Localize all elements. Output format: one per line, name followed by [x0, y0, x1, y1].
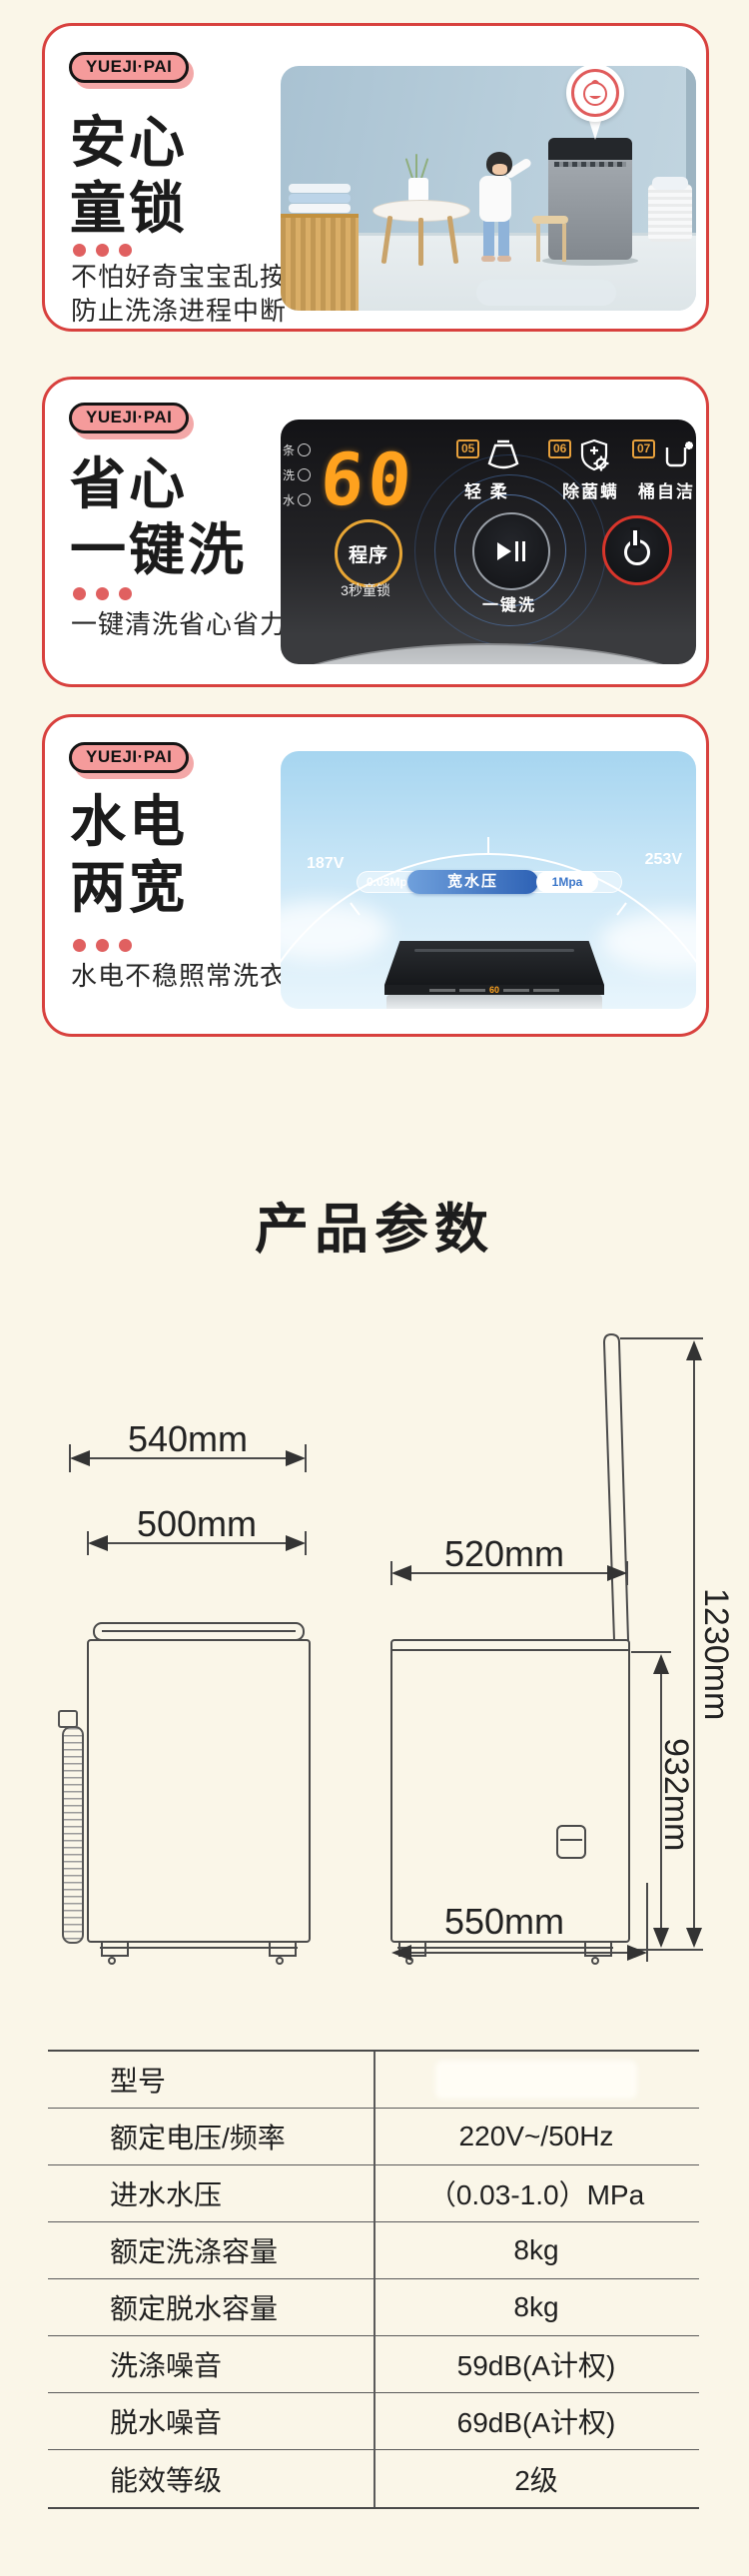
panel-silver-edge	[281, 643, 696, 664]
child-figure	[483, 220, 494, 256]
washing-machine	[548, 138, 632, 260]
dim-side-width: 520mm	[414, 1533, 594, 1575]
power-button	[602, 515, 672, 585]
row-value: 8kg	[374, 2291, 699, 2323]
card1-desc-line1: 不怕好奇宝宝乱按	[71, 260, 287, 294]
feature-card-child-lock: YUEJI·PAI 安心 童锁 不怕好奇宝宝乱按 防止洗涤进程中断	[42, 23, 709, 332]
child-lock-photo	[281, 66, 696, 311]
plant-sprig	[420, 158, 429, 180]
washing-machine-top: 60	[384, 941, 604, 1009]
towel	[289, 184, 351, 193]
child-figure	[479, 176, 511, 222]
child-face	[492, 164, 507, 175]
decorative-dots	[73, 244, 132, 257]
baby-face-icon	[566, 66, 624, 122]
stool-leg	[536, 224, 540, 262]
dim-top-width: 540mm	[98, 1418, 278, 1460]
brand-badge: YUEJI·PAI	[69, 742, 189, 773]
table-leg	[418, 218, 423, 266]
voltage-max: 253V	[645, 851, 682, 869]
voltage-gauge-photo: 187V 253V 0.03Mpa 宽水压 1Mpa 60	[281, 751, 696, 1009]
shield-gear-icon	[575, 437, 615, 475]
drain-hose	[62, 1726, 84, 1944]
indicator-icon	[298, 443, 311, 456]
power-icon	[624, 539, 650, 565]
card1-desc: 不怕好奇宝宝乱按 防止洗涤进程中断	[71, 260, 287, 329]
dim-body-height: 932mm	[656, 1738, 695, 1851]
program-button: 程序	[335, 519, 402, 587]
program-gentle-label: 轻 柔	[464, 477, 509, 502]
wicker-basket	[281, 214, 359, 311]
indicator-label: 条	[283, 441, 295, 458]
pressure-gauge: 0.03Mpa 宽水压 1Mpa	[357, 871, 622, 893]
decorative-dots	[73, 587, 132, 600]
row-value: 2级	[374, 2459, 699, 2499]
towel	[289, 204, 351, 213]
card3-desc-line1: 水电不稳照常洗衣	[71, 959, 287, 993]
dim-base-depth: 550mm	[414, 1901, 594, 1943]
program-button-label: 程序	[349, 540, 388, 567]
program-number-badge: 07	[632, 439, 655, 458]
skirt-icon	[483, 437, 523, 473]
card2-title-line1: 省心	[70, 451, 247, 517]
row-label: 脱水噪音	[48, 2401, 374, 2441]
row-label: 额定脱水容量	[48, 2287, 374, 2327]
row-value: （0.03-1.0）MPa	[374, 2173, 699, 2213]
feature-card-wide-range: YUEJI·PAI 水电 两宽 水电不稳照常洗衣 187V 253V 0.03M…	[42, 714, 709, 1037]
program-tubclean-label: 桶自洁	[638, 477, 695, 502]
program-gentle: 05	[456, 437, 523, 473]
child-figure	[498, 220, 509, 256]
indicator-label: 水	[283, 491, 295, 508]
program-number-badge: 05	[456, 439, 479, 458]
play-pause-button	[472, 512, 550, 590]
laundry-basket	[648, 184, 692, 242]
indicator-icon	[298, 468, 311, 481]
plant-sprig	[415, 154, 417, 180]
row-value: 8kg	[374, 2234, 699, 2266]
table-divider	[374, 2052, 375, 2507]
redacted-model-value	[436, 2062, 636, 2098]
rug	[476, 280, 616, 306]
control-panel-photo: 条 洗 水 60 05 轻 柔 06 除菌螨	[281, 420, 696, 664]
child-figure	[481, 256, 495, 262]
feature-card-onekey-wash: YUEJI·PAI 省心 一键洗 一键清洗省心省力 条 洗 水 60 05	[42, 377, 709, 687]
card3-desc: 水电不稳照常洗衣	[71, 959, 287, 993]
row-value	[374, 2062, 699, 2098]
stool	[532, 216, 568, 224]
child-figure	[497, 256, 511, 262]
row-value: 220V~/50Hz	[374, 2121, 699, 2152]
brand-badge: YUEJI·PAI	[69, 52, 189, 83]
card1-desc-line2: 防止洗涤进程中断	[71, 294, 287, 328]
childlock-hint: 3秒童锁	[321, 580, 410, 600]
row-value: 59dB(A计权)	[374, 2344, 699, 2384]
spec-table: 型号 额定电压/频率 220V~/50Hz 进水水压 （0.03-1.0）MPa…	[48, 2050, 699, 2509]
program-number-badge: 06	[548, 439, 571, 458]
card1-title-line2: 童锁	[70, 176, 188, 242]
machine-lid	[384, 941, 604, 985]
pressure-label: 宽水压	[407, 870, 538, 894]
row-label: 型号	[48, 2060, 374, 2100]
program-tubclean: 07	[632, 437, 696, 473]
row-label: 洗涤噪音	[48, 2344, 374, 2384]
card1-title: 安心 童锁	[70, 110, 188, 241]
dim-lid-width: 500mm	[107, 1503, 287, 1545]
card2-desc: 一键清洗省心省力	[71, 607, 287, 641]
section-title: 产品参数	[0, 1185, 749, 1264]
card1-title-line1: 安心	[70, 110, 188, 176]
indicator-label: 洗	[283, 466, 295, 483]
card2-desc-line1: 一键清洗省心省力	[71, 607, 287, 641]
machine-control-strip	[554, 162, 626, 167]
pressure-max: 1Mpa	[536, 871, 598, 893]
machine-body	[386, 995, 602, 1009]
plant-sprig	[405, 158, 414, 180]
card2-title-line2: 一键洗	[70, 517, 247, 583]
program-antimite: 06	[548, 437, 615, 475]
card3-title: 水电 两宽	[70, 789, 188, 920]
card3-title-line2: 两宽	[70, 855, 188, 921]
side-indicators: 条 洗 水	[283, 441, 311, 508]
onekey-label: 一键洗	[459, 591, 559, 615]
product-detail-page: YUEJI·PAI 安心 童锁 不怕好奇宝宝乱按 防止洗涤进程中断	[0, 0, 749, 2576]
machine-lid	[548, 138, 632, 160]
machine-control-strip: 60	[384, 985, 604, 995]
program-antimite-label: 除菌螨	[562, 477, 619, 502]
row-value: 69dB(A计权)	[374, 2401, 699, 2441]
row-label: 额定电压/频率	[48, 2117, 374, 2156]
mini-display: 60	[489, 986, 499, 995]
towel	[289, 194, 351, 203]
decorative-dots	[73, 939, 132, 952]
temperature-display: 60	[318, 437, 418, 521]
dim-total-height: 1230mm	[696, 1588, 735, 1720]
indicator-icon	[298, 493, 311, 506]
brand-badge: YUEJI·PAI	[69, 403, 189, 433]
voltage-min: 187V	[307, 855, 344, 873]
row-label: 进水水压	[48, 2173, 374, 2213]
card2-title: 省心 一键洗	[70, 451, 247, 582]
row-label: 能效等级	[48, 2459, 374, 2499]
stool-leg	[562, 224, 566, 262]
card3-title-line1: 水电	[70, 789, 188, 855]
play-pause-icon	[497, 542, 511, 560]
bucket-sparkle-icon	[659, 437, 696, 473]
row-label: 额定洗涤容量	[48, 2230, 374, 2270]
